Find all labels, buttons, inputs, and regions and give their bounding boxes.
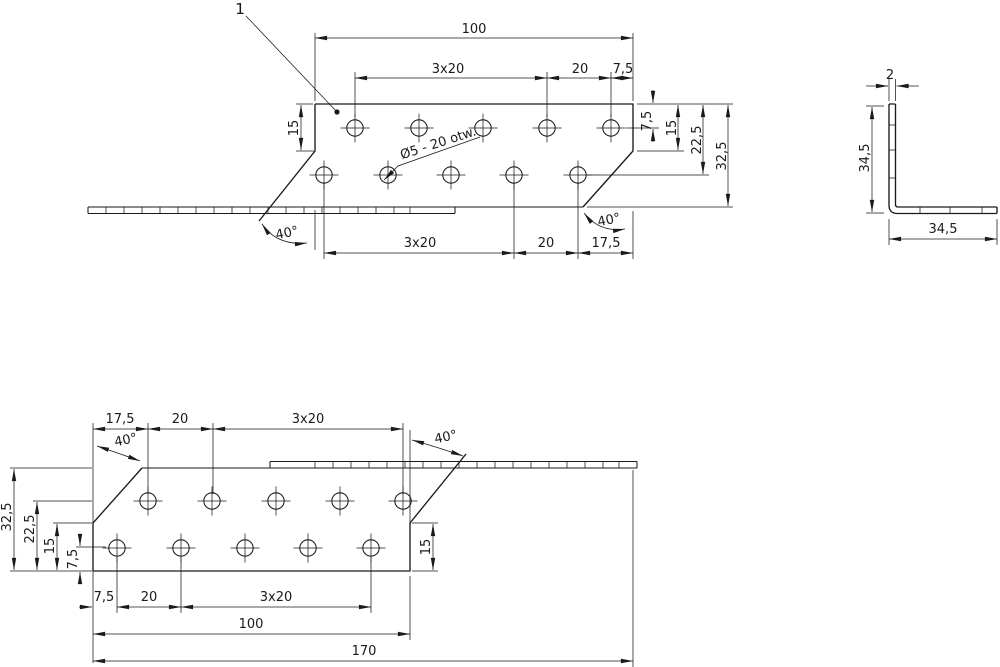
dim-overall-170: 170 (352, 644, 377, 659)
strip-serrations (315, 462, 619, 469)
back-view: 17,5 20 3x20 40° 40° 32,5 22,5 15 7,5 7,… (0, 412, 637, 667)
flange-strip (88, 207, 583, 214)
dim-right-22-5: 22,5 (690, 126, 705, 155)
dim-left-15: 15 (43, 538, 58, 555)
plate-outline (259, 104, 633, 221)
hole-note: Ø5 - 20 otw. (399, 124, 479, 163)
dim-row2-pitch: 3x20 (260, 590, 293, 605)
dim-row2-gap: 20 (141, 590, 158, 605)
leader-dot (334, 109, 339, 114)
dim-leg-height: 34,5 (858, 144, 873, 173)
dim-overall-100: 100 (462, 22, 487, 37)
dimension-lines (262, 38, 728, 253)
profile-serrations (889, 125, 982, 214)
dim-right-15: 15 (665, 120, 680, 137)
flange-strip (142, 462, 637, 469)
hole-pattern (310, 114, 626, 190)
dim-thickness: 2 (886, 68, 894, 83)
dim-row1-pitch: 3x20 (292, 412, 325, 427)
dim-row2-pitch: 3x20 (404, 236, 437, 251)
dim-angle-right: 40° (596, 211, 622, 230)
strip-serrations (106, 207, 410, 214)
dim-right-7-5: 7,5 (640, 111, 655, 132)
dim-left-15: 15 (287, 120, 302, 137)
dim-row1-gap: 20 (572, 62, 589, 77)
dim-angle-left: 40° (274, 224, 300, 243)
dim-angle-right: 40° (433, 428, 459, 447)
profile-outline (889, 104, 997, 214)
side-dimension-lines (866, 86, 997, 239)
hole-pattern (103, 487, 418, 563)
technical-drawing: 1 100 3x20 20 7,5 15 7,5 (0, 0, 1000, 667)
dim-angle-left: 40° (113, 431, 139, 450)
dim-right-15: 15 (419, 539, 434, 556)
side-view: 2 34,5 34,5 (858, 68, 997, 245)
dimension-lines (14, 429, 633, 661)
dim-row1-edge: 7,5 (613, 62, 634, 77)
dim-left-22-5: 22,5 (23, 515, 38, 544)
dim-leg-width: 34,5 (929, 222, 958, 237)
extension-lines (296, 33, 733, 259)
dim-row1-pitch: 3x20 (432, 62, 465, 77)
dim-row1-edge: 17,5 (106, 412, 135, 427)
dim-left-32-5: 32,5 (0, 503, 15, 532)
front-view: 1 100 3x20 20 7,5 15 7,5 (88, 0, 733, 259)
drawing-sheet: 1 100 3x20 20 7,5 15 7,5 (0, 0, 1000, 667)
extension-lines (10, 423, 633, 667)
dim-row2-gap: 20 (538, 236, 555, 251)
dim-right-32-5: 32,5 (715, 142, 730, 171)
dim-row2-edge: 17,5 (592, 236, 621, 251)
dim-row2-edge: 7,5 (94, 590, 115, 605)
side-extension-lines (866, 79, 997, 245)
dim-row1-gap: 20 (172, 412, 189, 427)
dim-length-100: 100 (239, 617, 264, 632)
part-number-label: 1 (235, 0, 245, 18)
part-leader: 1 (235, 0, 340, 115)
dim-left-7-5: 7,5 (66, 549, 81, 570)
